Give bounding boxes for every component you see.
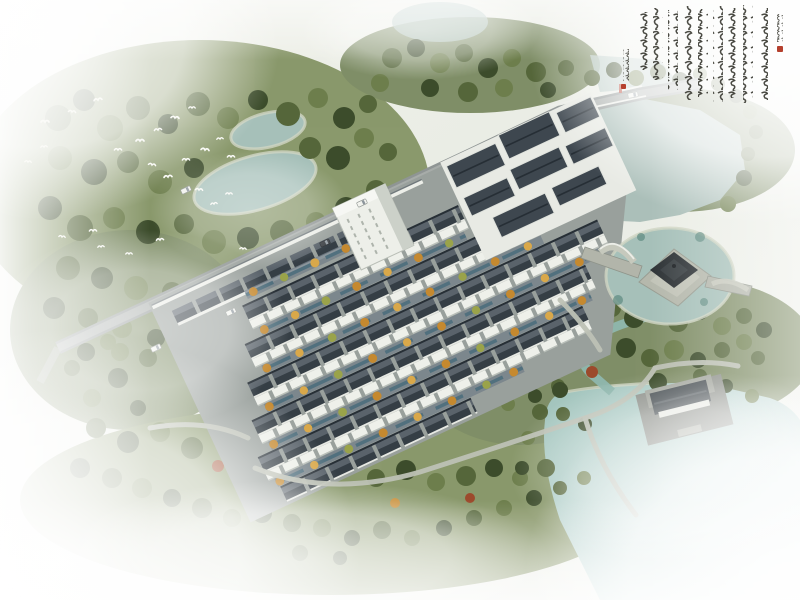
calligraphy-title-column: [777, 14, 783, 42]
calligraphy-column: [653, 8, 663, 80]
calligraphy-column: [728, 8, 738, 98]
calligraphy-column: [668, 10, 678, 90]
seal-stamp: [777, 46, 783, 52]
aerial-rendering-scene: [0, 0, 800, 600]
calligraphy-column: [713, 6, 723, 102]
calligraphy-column: [698, 9, 708, 97]
calligraphy-column: [743, 5, 753, 103]
calligraphy-signature-column: [623, 49, 629, 81]
calligraphy-column: [638, 12, 648, 70]
calligraphy-column: [758, 8, 768, 100]
calligraphy-column: [683, 6, 693, 100]
rendering-canvas: [0, 0, 800, 600]
seal-stamp: [621, 84, 626, 89]
